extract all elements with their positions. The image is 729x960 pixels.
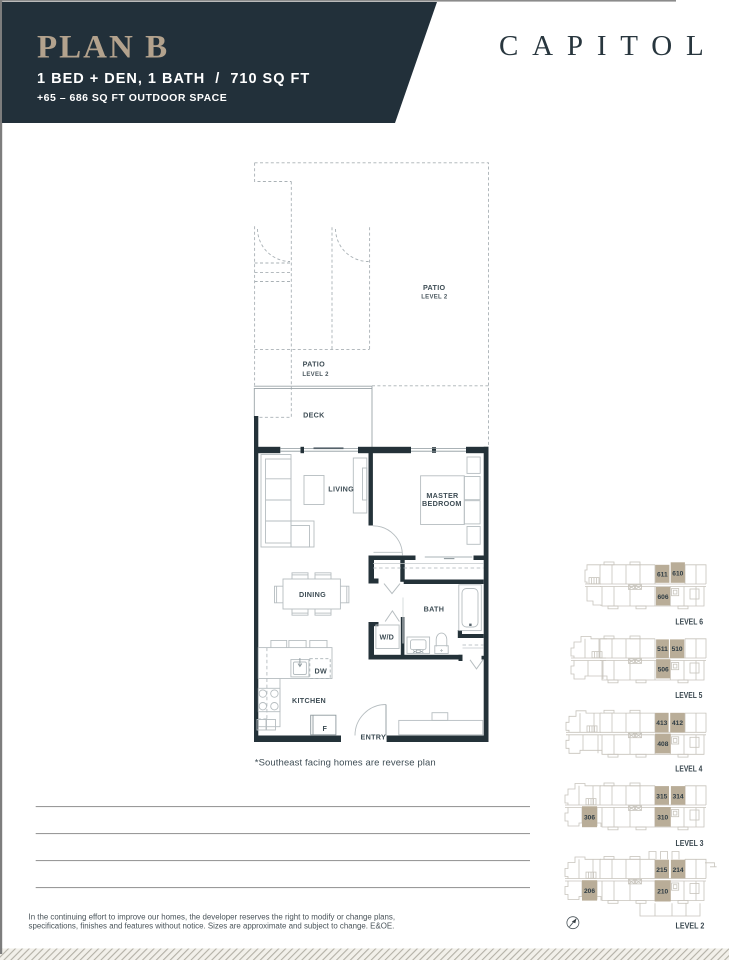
svg-text:1 BED + DEN, 1 BATH / 710 SQ: 1 BED + DEN, 1 BATH / 710 SQ FT [37, 71, 310, 87]
svg-text:LEVEL 6: LEVEL 6 [675, 617, 703, 627]
svg-text:ENTRY: ENTRY [361, 733, 387, 742]
svg-text:310: 310 [657, 815, 668, 822]
svg-text:In the continuing effort to im: In the continuing effort to improve our … [29, 913, 396, 922]
svg-text:BATH: BATH [424, 605, 445, 614]
svg-text:BEDROOM: BEDROOM [422, 499, 462, 508]
svg-text:*Southeast facing homes are re: *Southeast facing homes are reverse plan [255, 758, 436, 769]
svg-text:511: 511 [657, 646, 668, 653]
svg-text:413: 413 [656, 720, 667, 727]
svg-text:314: 314 [673, 793, 684, 800]
svg-text:specifications, finishes and f: specifications, finishes and features wi… [29, 922, 395, 931]
svg-text:306: 306 [584, 815, 595, 822]
svg-text:606: 606 [657, 594, 668, 601]
svg-text:214: 214 [673, 867, 684, 874]
svg-text:F: F [323, 724, 328, 733]
svg-text:506: 506 [658, 667, 669, 674]
svg-text:315: 315 [656, 793, 667, 800]
svg-text:610: 610 [672, 571, 683, 578]
svg-text:W/D: W/D [380, 633, 395, 642]
svg-text:LEVEL 2: LEVEL 2 [676, 921, 705, 931]
svg-text:611: 611 [657, 572, 668, 579]
svg-text:412: 412 [672, 720, 683, 727]
svg-text:LEVEL 4: LEVEL 4 [675, 763, 702, 773]
svg-text:CAPITOL: CAPITOL [499, 30, 718, 62]
svg-text:KITCHEN: KITCHEN [292, 696, 326, 705]
svg-text:LIVING: LIVING [328, 485, 354, 494]
svg-text:DINING: DINING [299, 590, 326, 599]
svg-text:LEVEL 2: LEVEL 2 [421, 295, 448, 301]
svg-text:LEVEL 2: LEVEL 2 [302, 372, 329, 378]
svg-text:215: 215 [656, 867, 667, 874]
svg-text:DW: DW [315, 666, 328, 675]
svg-text:LEVEL 5: LEVEL 5 [675, 690, 702, 700]
svg-text:206: 206 [584, 888, 595, 895]
svg-text:408: 408 [657, 741, 668, 748]
svg-text:PLAN B: PLAN B [37, 30, 169, 66]
svg-text:510: 510 [672, 646, 683, 653]
svg-text:PATIO: PATIO [303, 360, 326, 369]
svg-text:210: 210 [657, 888, 668, 895]
svg-text:+65 – 686 SQ FT OUTDOOR SPACE: +65 – 686 SQ FT OUTDOOR SPACE [37, 92, 227, 104]
svg-text:PATIO: PATIO [423, 283, 446, 292]
svg-text:DECK: DECK [303, 411, 325, 420]
svg-text:LEVEL 3: LEVEL 3 [676, 838, 704, 848]
